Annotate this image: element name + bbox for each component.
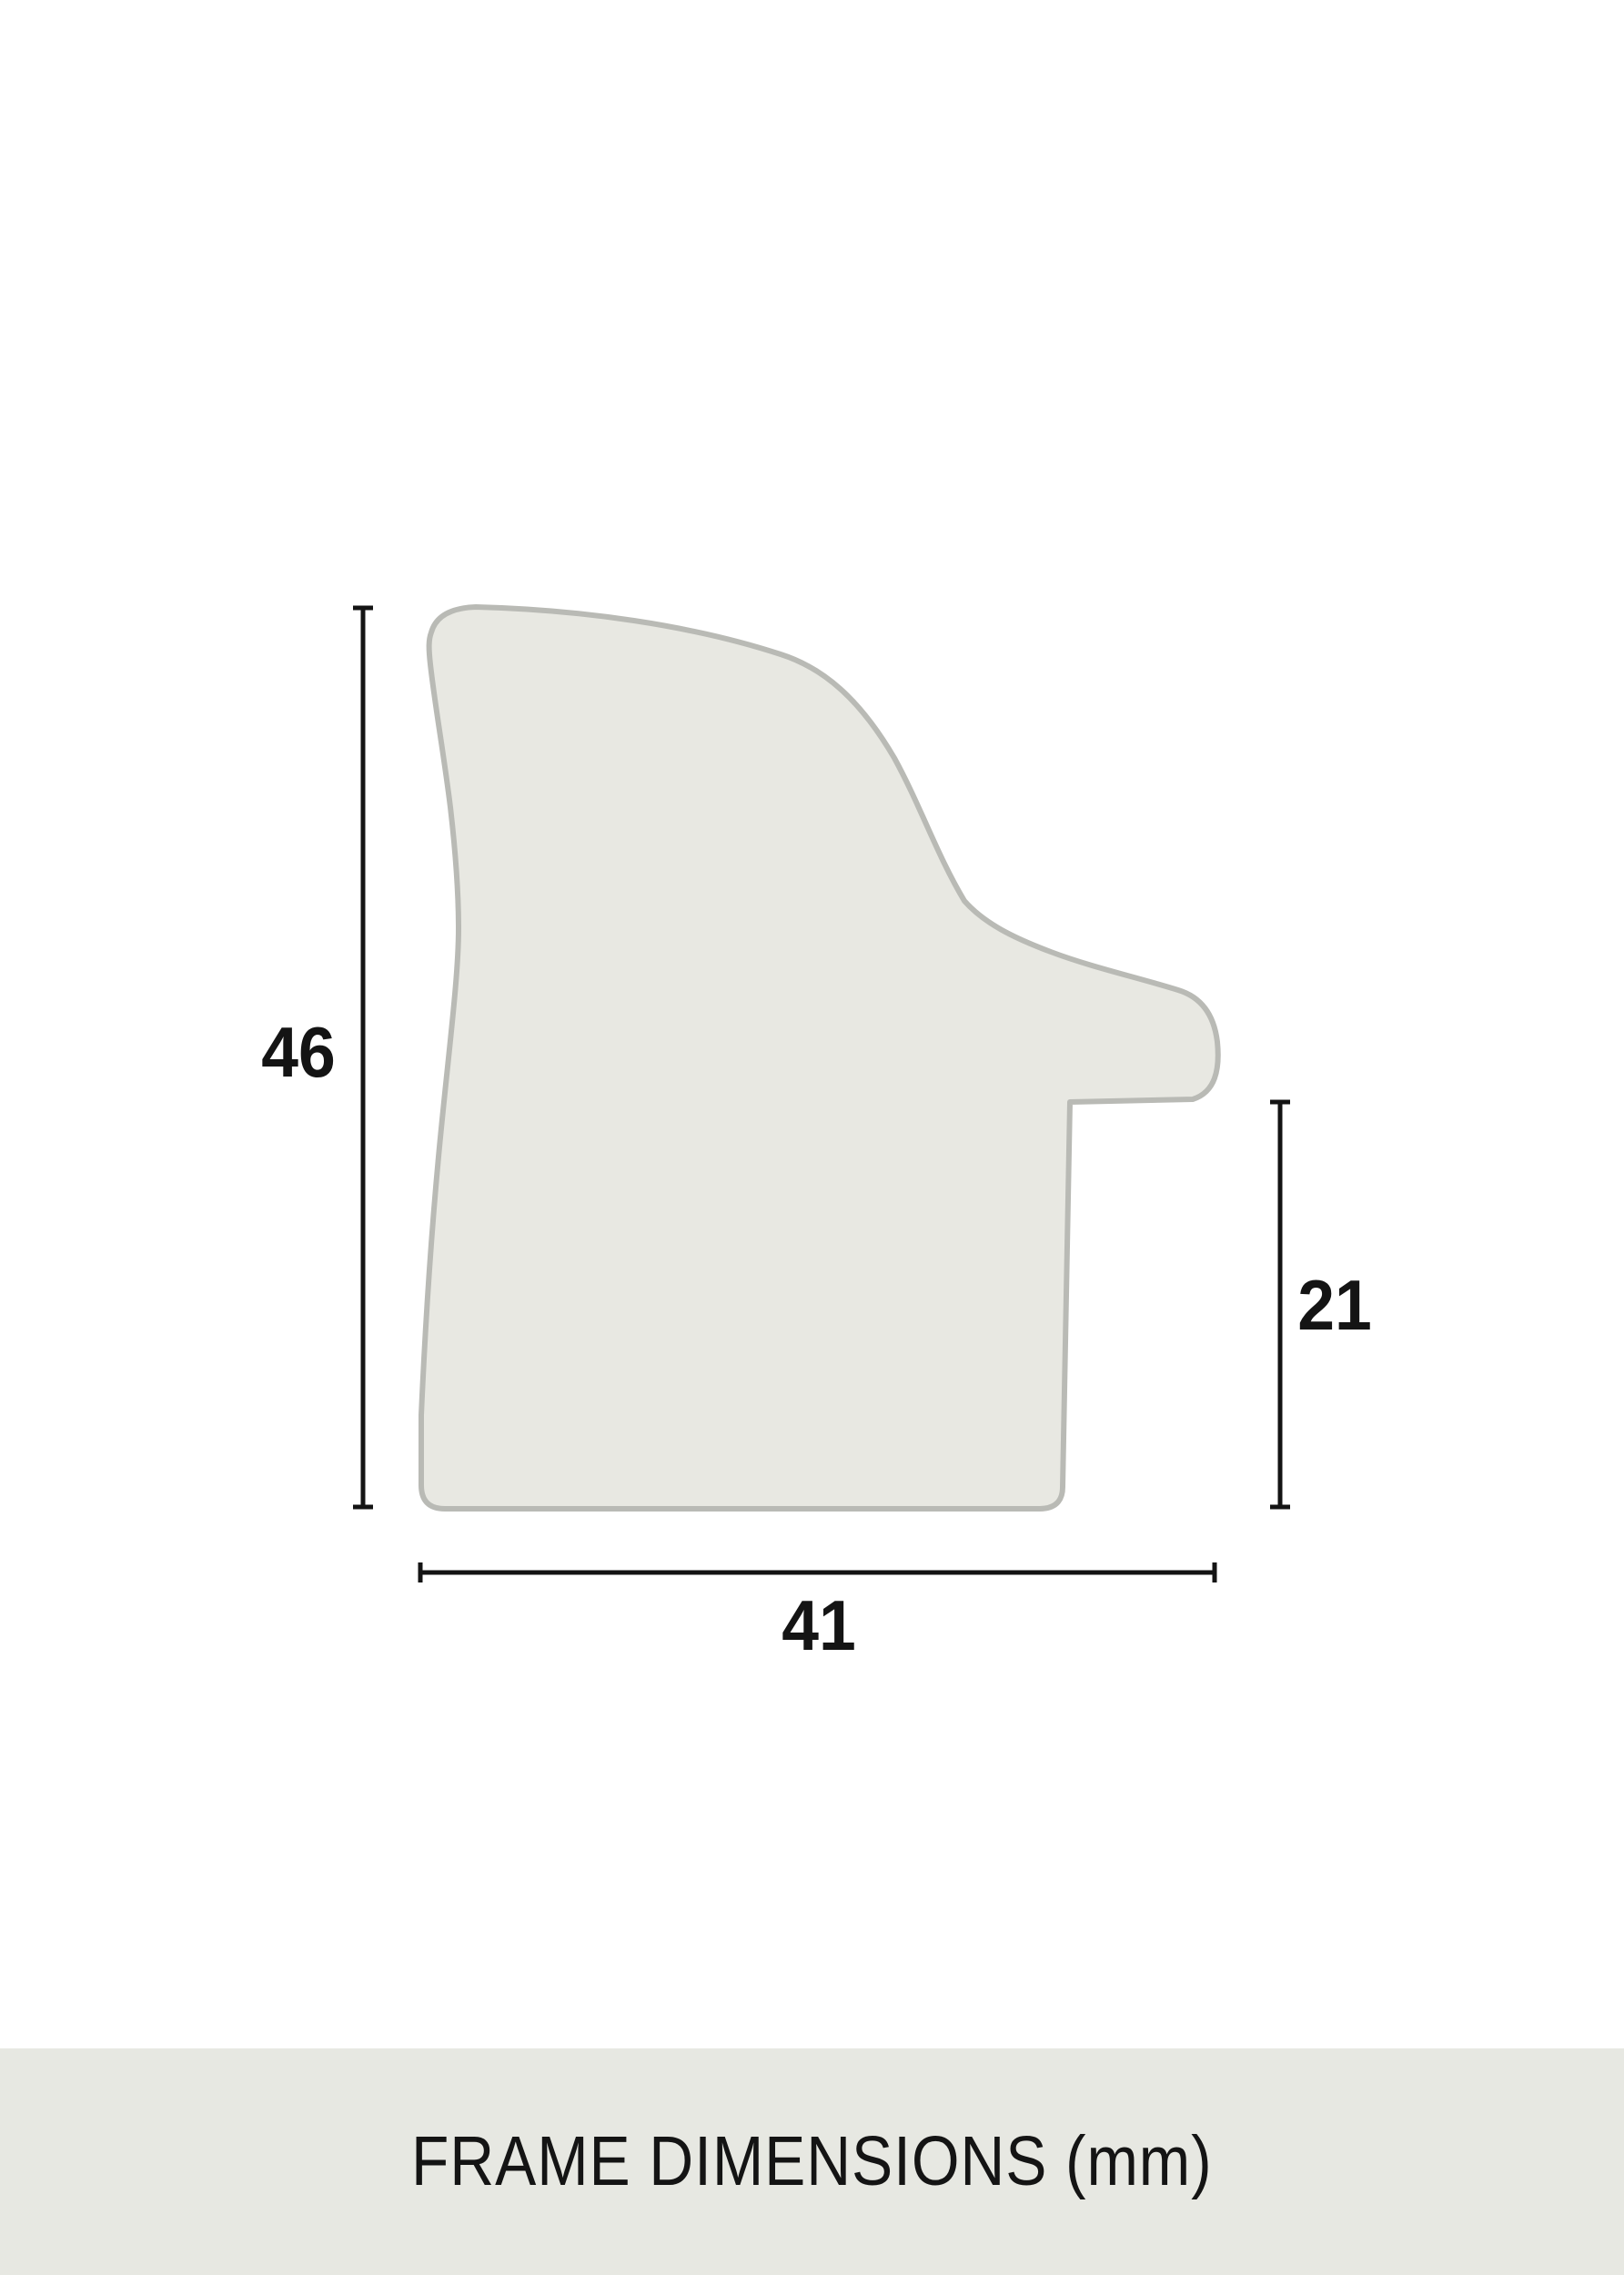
width-dimension-line	[420, 1562, 1215, 1582]
height-dimension-line	[353, 608, 373, 1507]
height-dimension-label: 46	[261, 1016, 336, 1087]
frame-profile-shape	[421, 607, 1218, 1509]
frame-profile-outline	[421, 607, 1218, 1509]
profile-drawing	[0, 0, 1624, 2275]
width-dimension-label: 41	[782, 1590, 856, 1661]
rabbet-dimension-label: 21	[1297, 1269, 1372, 1340]
rabbet-dimension-line	[1270, 1102, 1290, 1507]
footer-banner: FRAME DIMENSIONS (mm)	[0, 2048, 1624, 2275]
frame-dimensions-diagram: 46 21 41 FRAME DIMENSIONS (mm)	[0, 0, 1624, 2275]
footer-title: FRAME DIMENSIONS (mm)	[411, 2127, 1213, 2197]
